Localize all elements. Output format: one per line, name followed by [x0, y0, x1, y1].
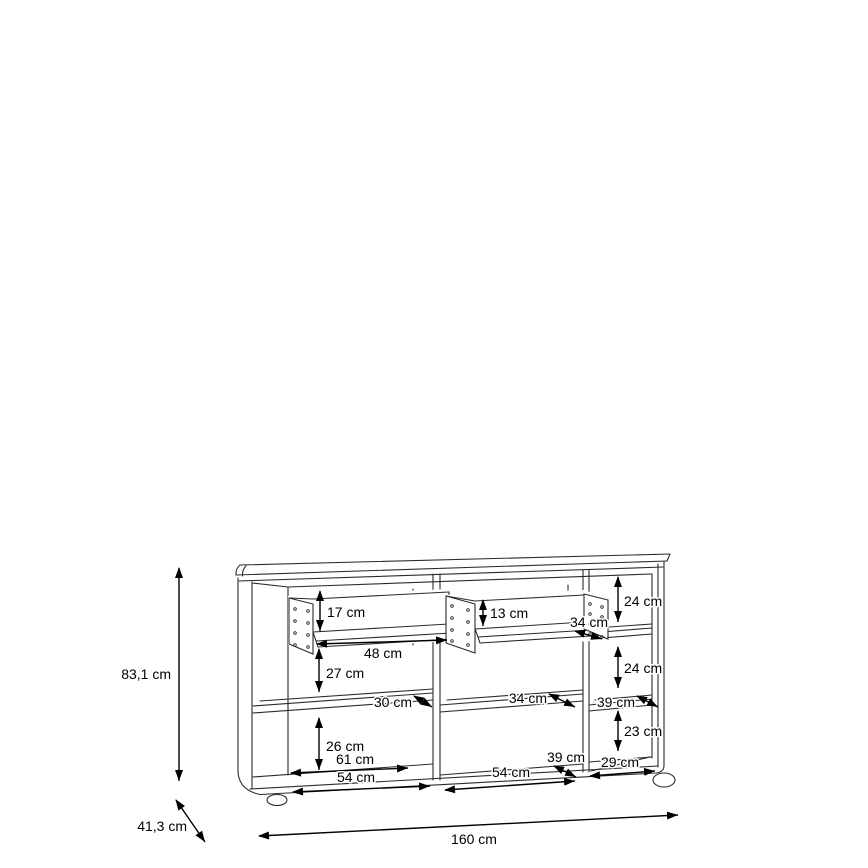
bottom-band-top-edge	[250, 766, 658, 789]
arrow-left-bottom-width	[293, 786, 430, 792]
label-drawer-right-height: 13 cm	[490, 605, 528, 621]
label-right-lower-height: 23 cm	[624, 723, 662, 739]
label-overall-height: 83,1 cm	[121, 666, 171, 682]
label-right-shelf-depth: 39 cm	[597, 694, 635, 710]
back-wall-top-edge	[288, 574, 652, 587]
label-right-middle-height: 24 cm	[624, 660, 662, 676]
drawer-right-side-panel	[446, 596, 475, 653]
label-left-shelf-depth: 30 cm	[374, 694, 412, 710]
drawer-left-side-panel	[289, 598, 313, 654]
ceiling-connector	[252, 583, 288, 587]
label-drawer-left-height: 17 cm	[327, 604, 365, 620]
label-overall-width: 160 cm	[451, 831, 497, 847]
foot-right	[653, 773, 675, 787]
label-right-bottom-width: 29 cm	[601, 754, 639, 770]
label-drawer-left-width: 48 cm	[364, 645, 402, 661]
foot-left	[267, 795, 287, 806]
arrow-middle-bottom-width	[445, 781, 575, 790]
furniture-dimension-diagram: 83,1 cm 41,3 cm 160 cm 17 cm 48 cm 13 cm…	[0, 0, 868, 868]
sideboard-technical-drawing: 83,1 cm 41,3 cm 160 cm 17 cm 48 cm 13 cm…	[0, 0, 868, 868]
label-middle-bottom-depth: 39 cm	[547, 749, 585, 765]
label-left-upper-height: 27 cm	[326, 665, 364, 681]
label-overall-depth: 41,3 cm	[137, 818, 187, 834]
label-middle-shelf-depth: 34 cm	[509, 690, 547, 706]
label-middle-bottom-width: 54 cm	[492, 764, 530, 780]
label-left-bottom-width: 54 cm	[337, 769, 375, 785]
label-right-top-height: 24 cm	[624, 593, 662, 609]
label-drawer-right-depth: 34 cm	[570, 614, 608, 630]
label-left-inner-width: 61 cm	[336, 751, 374, 767]
top-panel	[236, 554, 670, 581]
